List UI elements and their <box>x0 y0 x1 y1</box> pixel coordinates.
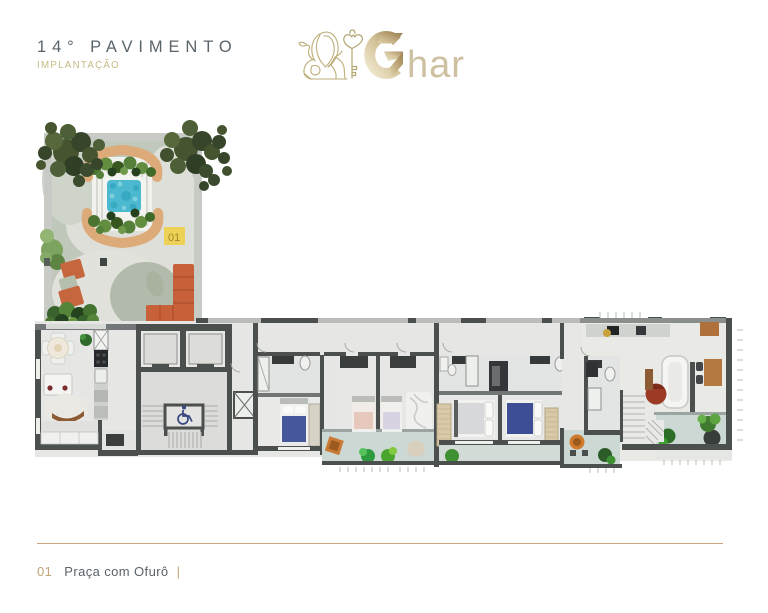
svg-text:01: 01 <box>168 232 180 244</box>
